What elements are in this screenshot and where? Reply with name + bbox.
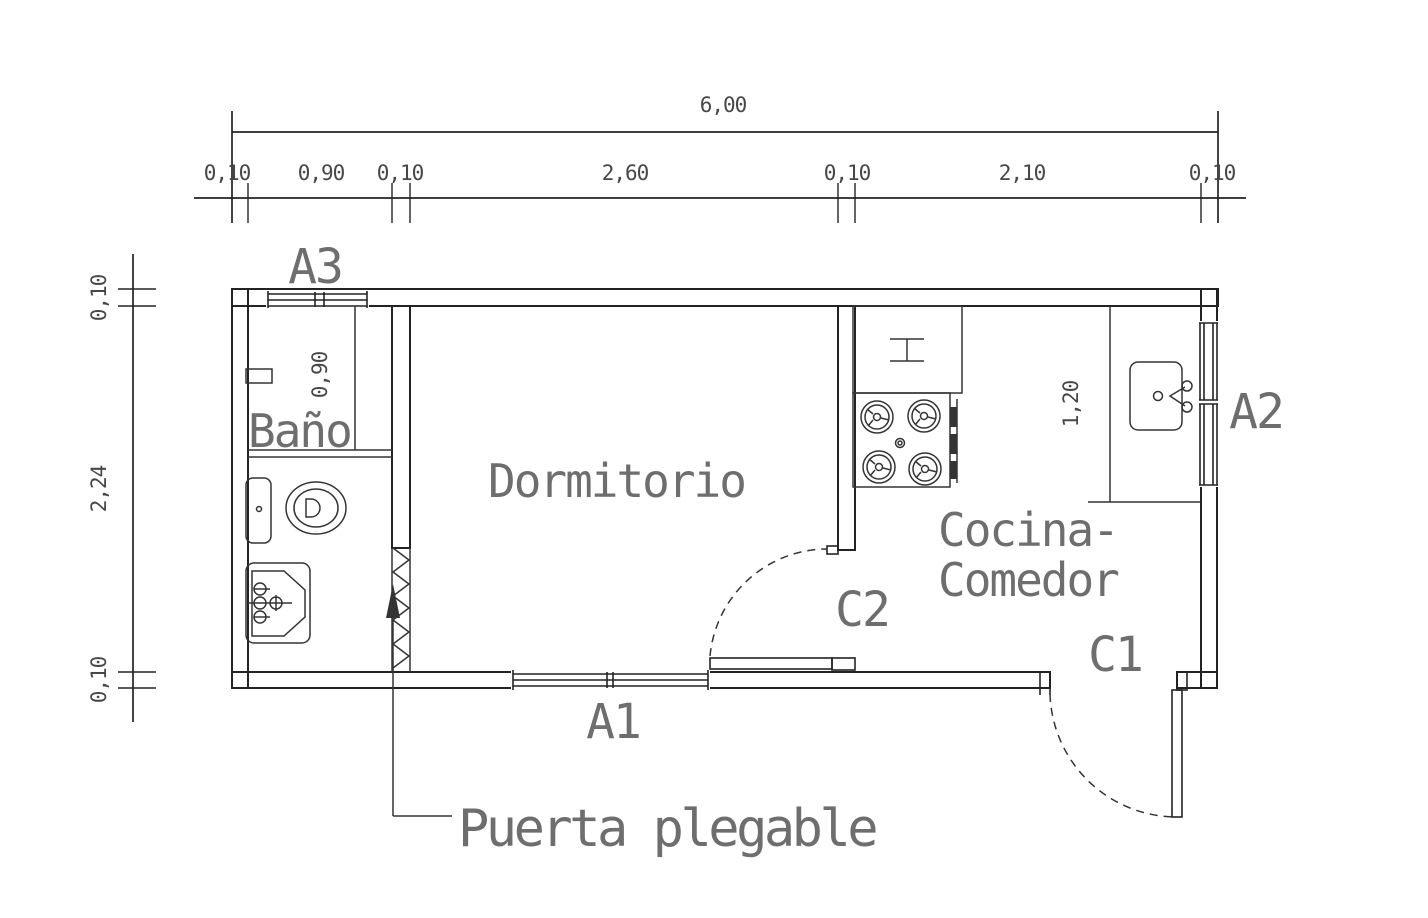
dim-top-4: 0,10 <box>824 161 871 185</box>
door-c1-swing-arc <box>1050 694 1177 817</box>
leader-arrow-icon <box>386 584 400 618</box>
bathroom-sink-icon <box>246 563 310 643</box>
opening-label-c2: C2 <box>835 582 889 638</box>
partition-kitchen-end-cap <box>827 546 838 554</box>
door-c2-swing-arc <box>710 549 827 656</box>
window-a1 <box>511 670 710 690</box>
counter-symbol-icon <box>853 306 962 393</box>
dim-top-6: 0,10 <box>1189 161 1236 185</box>
floorplan-canvas: 6,00 0,10 0,90 0,10 2,60 0,10 2,10 0,10 … <box>0 0 1428 918</box>
dim-kitchen-counter: 1,20 <box>1059 380 1083 427</box>
dim-left-2: 0,10 <box>87 656 111 703</box>
stove-icon <box>853 393 957 487</box>
kitchen-fixtures <box>853 306 1200 502</box>
dim-top-5: 2,10 <box>999 161 1046 185</box>
note-folding-door: Puerta plegable <box>458 799 876 859</box>
total-width-label: 6,00 <box>700 93 747 117</box>
kitchen-sink-icon <box>1130 362 1192 430</box>
room-label-bathroom: Baño <box>248 404 351 458</box>
opening-label-a3: A3 <box>288 239 342 295</box>
door-c2-leaf <box>710 658 832 669</box>
dim-top-3: 2,60 <box>602 161 649 185</box>
door-c2 <box>710 549 855 670</box>
door-c1-leaf <box>1172 690 1182 817</box>
toilet-icon <box>246 478 346 543</box>
partition-bathroom <box>392 306 410 548</box>
room-label-kitchen-line1: Cocina- <box>938 503 1118 557</box>
room-label-bedroom: Dormitorio <box>488 454 745 508</box>
window-a2 <box>1199 321 1219 487</box>
dim-left-1: 2,24 <box>87 465 111 512</box>
dimension-block-top: 6,00 0,10 0,90 0,10 2,60 0,10 2,10 0,10 <box>194 93 1246 223</box>
dim-top-1: 0,90 <box>298 161 345 185</box>
folding-door-leader <box>386 584 452 816</box>
room-label-kitchen-line2: Comedor <box>938 553 1118 607</box>
opening-label-c1: C1 <box>1088 627 1142 683</box>
opening-label-a1: A1 <box>586 694 640 750</box>
dim-left-0: 0,10 <box>87 274 111 321</box>
door-c1 <box>1040 672 1187 817</box>
dim-top-0: 0,10 <box>204 161 251 185</box>
dim-top-2: 0,10 <box>377 161 424 185</box>
wall-top <box>232 289 1218 306</box>
dimension-block-left: 0,10 2,24 0,10 <box>87 254 156 722</box>
dim-bathroom-inner: 0,90 <box>308 351 332 398</box>
opening-label-a2: A2 <box>1229 384 1283 440</box>
door-c2-hinge-block <box>832 658 855 670</box>
shower-niche-icon <box>246 369 272 383</box>
wall-bottom-right-stub <box>1177 672 1217 688</box>
